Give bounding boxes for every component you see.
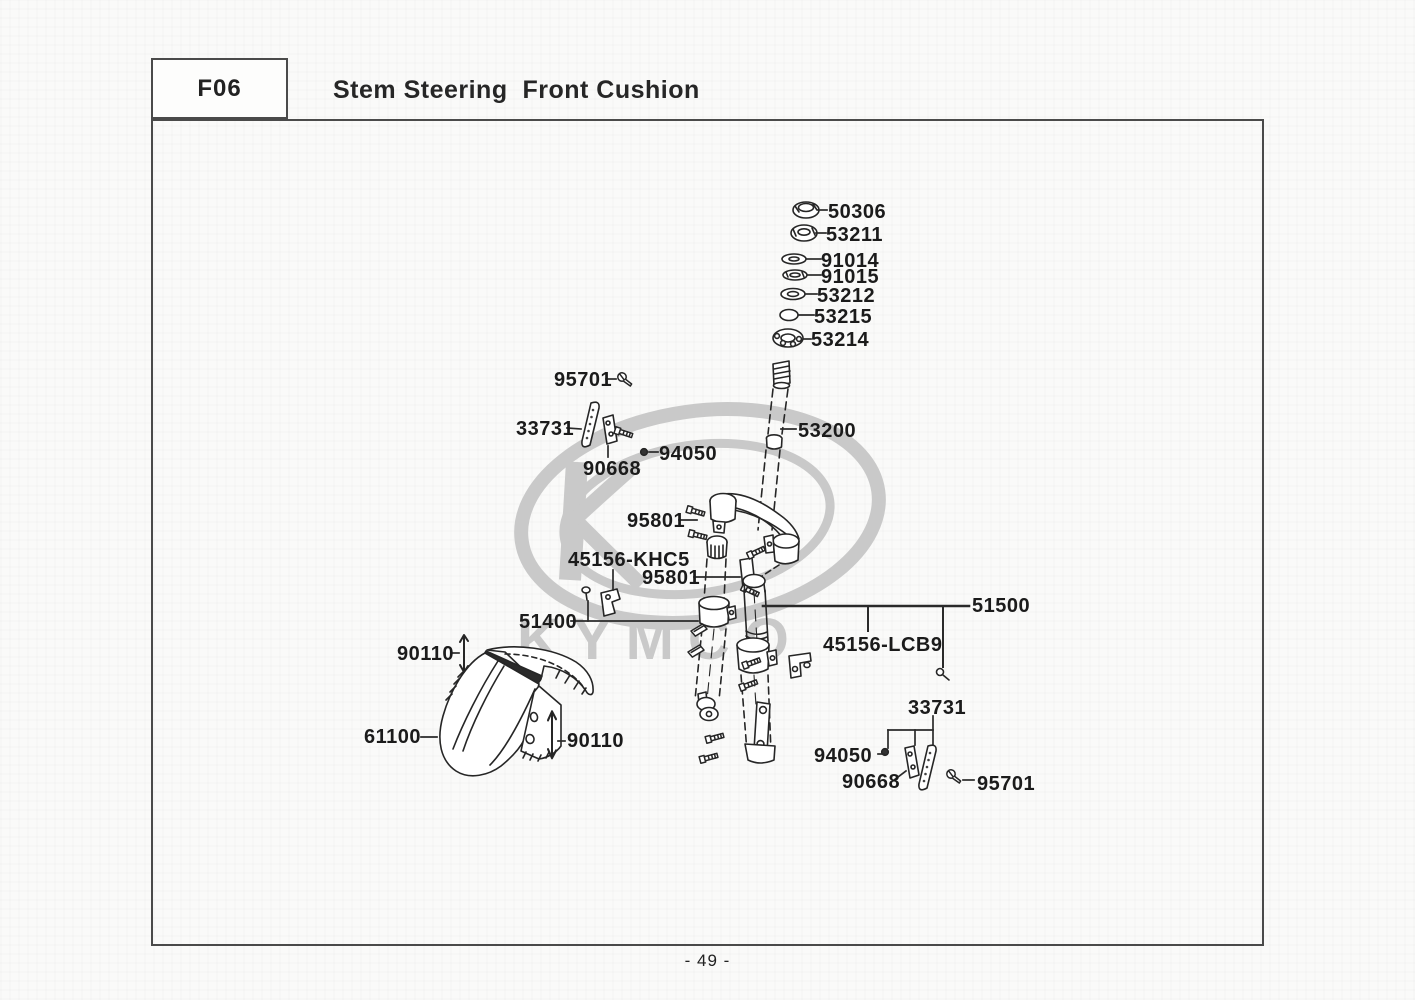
- fastener-94050-left: [641, 449, 648, 456]
- right-reflector-group: [905, 745, 936, 790]
- fastener-95701-left: [617, 372, 633, 386]
- steering-under-bracket: [710, 494, 799, 577]
- fastener-95701-right: [946, 769, 962, 783]
- hose-guide-lcb9: [789, 653, 811, 678]
- section-code-box: F06: [151, 58, 288, 119]
- section-code: F06: [197, 75, 241, 103]
- exploded-parts-diagram: [0, 0, 1415, 1000]
- fastener-90110-left: [460, 635, 468, 672]
- left-front-cushion: [687, 536, 736, 721]
- fastener-pinch-bolt: [937, 669, 950, 681]
- bracket-bolts-upper: [686, 506, 707, 541]
- front-fender: [440, 647, 593, 776]
- page-number: - 49 -: [151, 951, 1264, 971]
- page-title: Stem Steering Front Cushion: [333, 76, 700, 105]
